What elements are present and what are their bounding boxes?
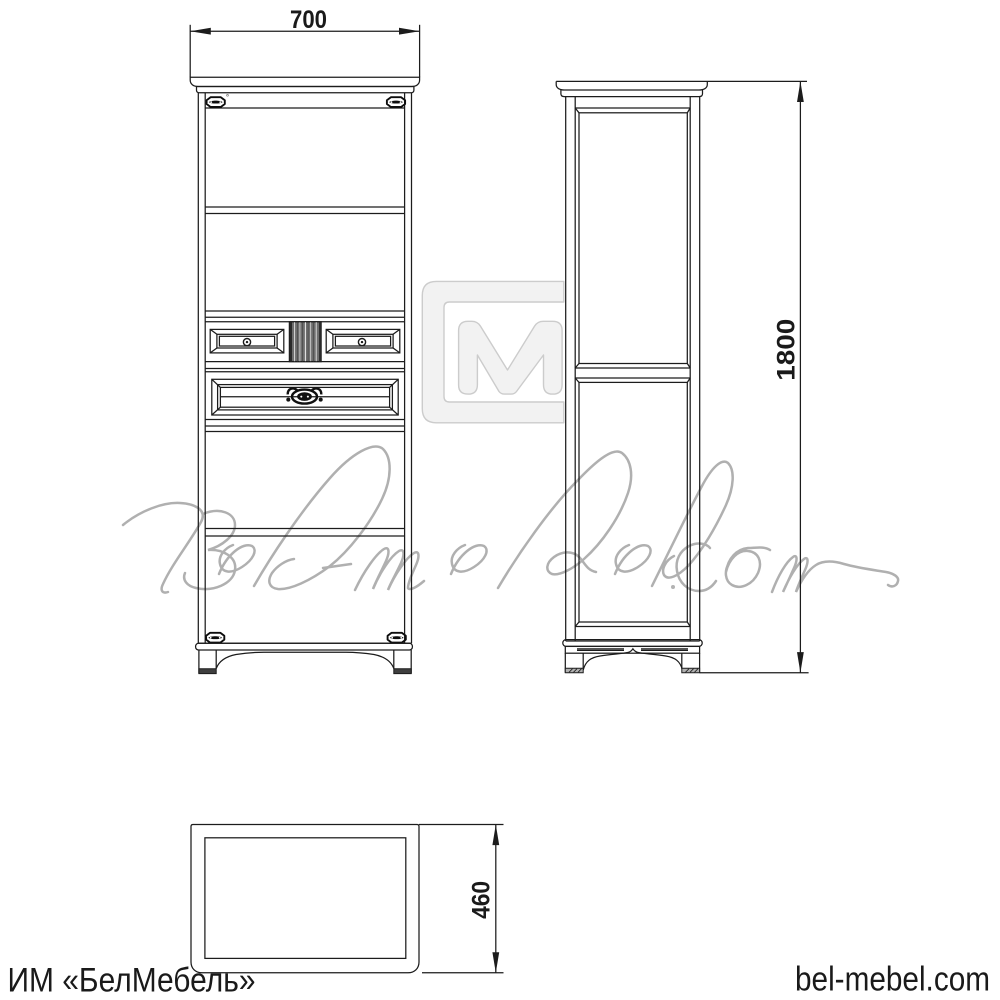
svg-text:460: 460 bbox=[468, 881, 496, 919]
svg-text:1800: 1800 bbox=[773, 319, 801, 381]
svg-text:bel-mebel.com: bel-mebel.com bbox=[795, 961, 990, 999]
svg-text:ИМ «БелМебель»: ИМ «БелМебель» bbox=[8, 962, 256, 1000]
svg-text:700: 700 bbox=[290, 6, 327, 34]
